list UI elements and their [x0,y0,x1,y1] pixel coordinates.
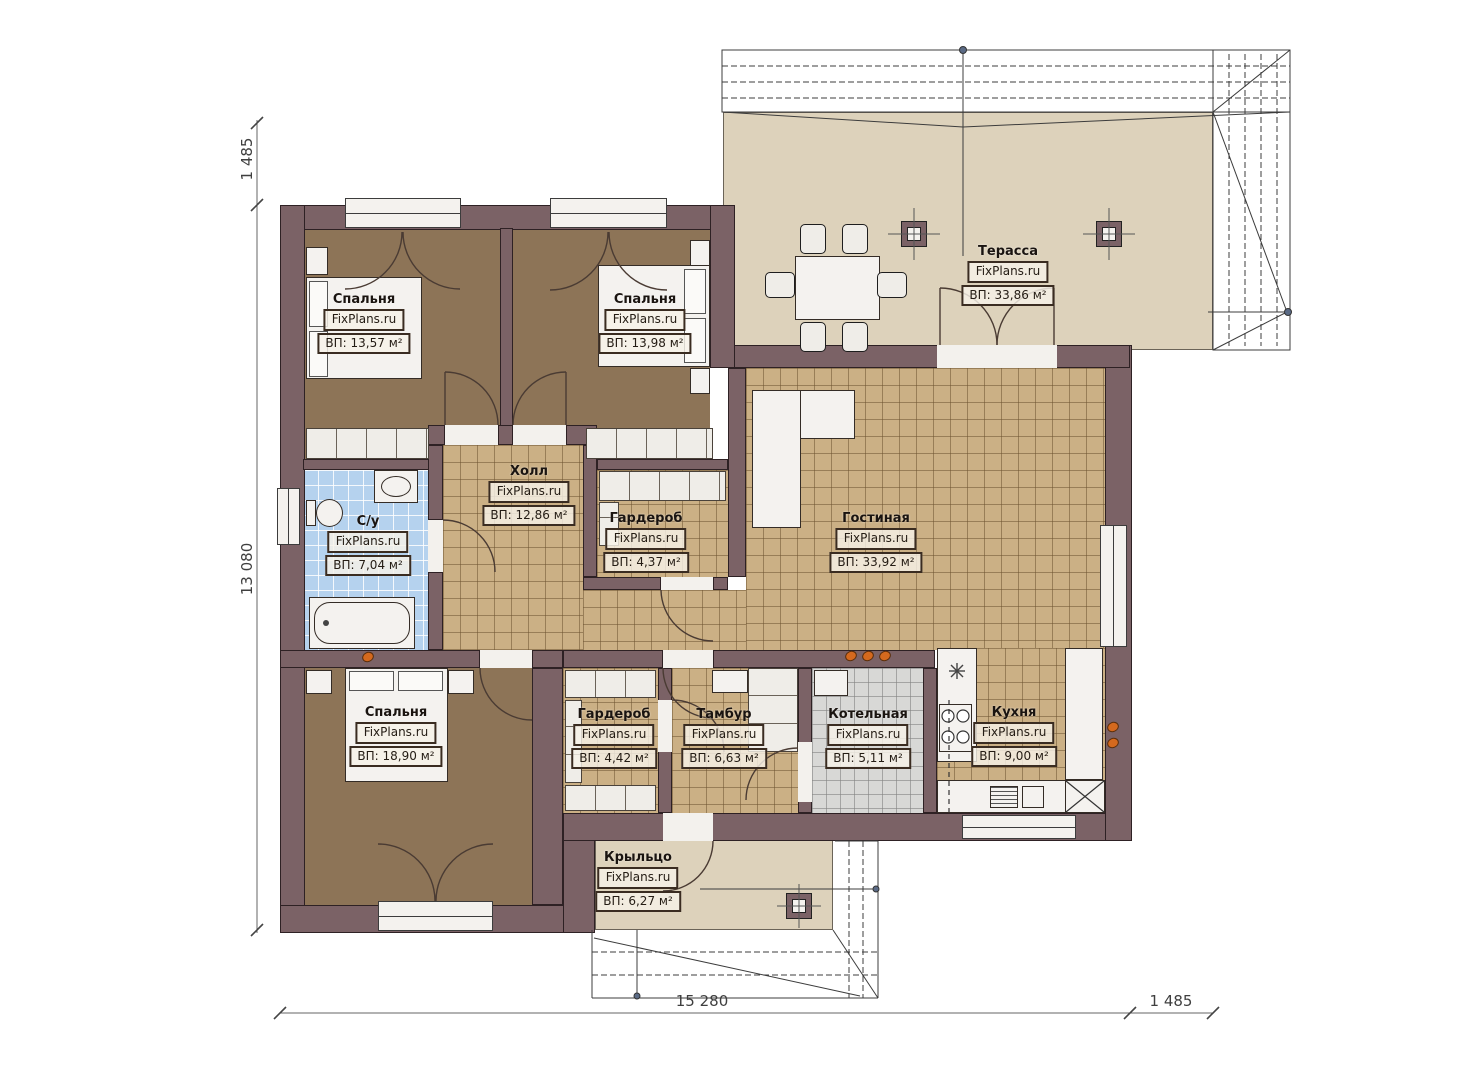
room-name: Гостиная [842,512,910,526]
room-name: Гардероб [577,708,650,722]
kitchen-sink-basin [1022,786,1044,808]
room-label-bedroom-bottom: Спальня FixPlans.ru ВП: 18,90 м² [349,706,442,767]
room-area: ВП: 7,04 м² [325,555,411,576]
window-bedroom-top-left [345,198,461,228]
sofa-vertical [752,390,801,528]
room-label-kitchen: Кухня FixPlans.ru ВП: 9,00 м² [971,706,1057,767]
room-label-living-room: Гостиная FixPlans.ru ВП: 33,92 м² [829,512,922,573]
room-name: Спальня [333,293,395,307]
window-bedroom-bottom [378,901,493,931]
wall-terrace-living [710,345,1130,368]
room-area: ВП: 12,86 м² [482,505,575,526]
room-name: Котельная [828,708,908,722]
room-label-wardrobe-top: Гардероб FixPlans.ru ВП: 4,37 м² [603,512,689,573]
room-label-wardrobe-bottom: Гардероб FixPlans.ru ВП: 4,42 м² [571,708,657,769]
room-label-bedroom-top-right: Спальня FixPlans.ru ВП: 13,98 м² [598,293,691,354]
closet-bedroom-top-right [586,428,713,459]
room-label-vestibule: Тамбур FixPlans.ru ВП: 6,63 м² [681,708,767,769]
room-area: ВП: 6,63 м² [681,748,767,769]
room-label-bedroom-top-left: Спальня FixPlans.ru ВП: 13,57 м² [317,293,410,354]
chair [800,322,826,352]
room-label-terrace: Терасса FixPlans.ru ВП: 33,86 м² [961,245,1054,306]
door-opening-bedroom-top-left [445,425,498,445]
wall-bath-east-b [428,572,443,650]
wall-bath-east-a [428,445,443,520]
door-opening-bedroom-top-right [513,425,566,445]
wall-wardrobe-top-south-a [583,577,661,590]
brand-watermark: FixPlans.ru [328,531,409,552]
wall-wardrobe-top-north [597,459,728,470]
room-label-bathroom: С/у FixPlans.ru ВП: 7,04 м² [325,515,411,576]
wall-vestibule-north [713,650,935,668]
brand-watermark: FixPlans.ru [684,724,765,745]
room-name: Спальня [365,706,427,720]
column-terrace-1 [901,221,927,247]
door-opening-entrance [663,813,713,841]
closet-wardrobe-top [599,471,726,501]
wall-hall-living [728,368,746,577]
wall-bedroom-bottom-north-a [280,650,480,668]
kitchen-counter-right [1065,648,1103,780]
toilet-tank [306,500,316,526]
brand-watermark: FixPlans.ru [974,722,1055,743]
room-name: С/у [357,515,380,529]
dimension-left-top: 1 485 [238,124,256,194]
pillow [398,671,443,691]
wall-left [280,205,305,933]
room-area: ВП: 5,11 м² [825,748,911,769]
room-name: Терасса [978,245,1038,259]
room-name: Крыльцо [604,851,672,865]
wall-bedroom-block-east [710,205,735,368]
brand-watermark: FixPlans.ru [598,867,679,888]
brand-watermark: FixPlans.ru [489,481,570,502]
door-opening-boiler [798,742,812,802]
brand-watermark: FixPlans.ru [605,309,686,330]
room-area: ВП: 4,42 м² [571,748,657,769]
sink-basin [381,476,411,497]
wall-bedroom-bottom-north-b [532,650,563,668]
pillow [349,671,394,691]
wall-bath-north [303,459,429,470]
chair [877,272,907,298]
room-name: Спальня [614,293,676,307]
nightstand [448,670,474,694]
brand-watermark: FixPlans.ru [574,724,655,745]
closet-wardrobe-bottom-top [565,670,656,698]
room-area: ВП: 18,90 м² [349,746,442,767]
wall-wardrobe-top-south-b [713,577,728,590]
room-label-boiler-room: Котельная FixPlans.ru ВП: 5,11 м² [825,708,911,769]
room-area: ВП: 6,27 м² [595,891,681,912]
door-opening-bedroom-bottom [480,650,532,668]
brand-watermark: FixPlans.ru [324,309,405,330]
wall-bedroom-bottom-east [532,668,563,905]
closet-bedroom-top-left [306,428,429,459]
column-terrace-2 [1096,221,1122,247]
window-bathroom [277,488,300,545]
closet-wardrobe-bottom-low [565,785,656,811]
nightstand [306,247,328,275]
brand-watermark: FixPlans.ru [606,528,687,549]
nightstand [690,240,710,266]
dimension-left-side: 13 080 [238,534,256,604]
nightstand [306,670,332,694]
wall-hall-top-b [498,425,513,445]
brand-watermark: FixPlans.ru [356,722,437,743]
dining-table [795,256,880,320]
wall-boiler-kitchen [923,668,937,813]
cabinet-vestibule [712,670,748,693]
door-opening-vestibule [663,650,713,668]
brand-watermark: FixPlans.ru [836,528,917,549]
floor-plan-canvas: Спальня FixPlans.ru ВП: 13,57 м² Спальня… [0,0,1473,1080]
kitchen-x-appliance [1065,780,1105,813]
room-name: Тамбур [696,708,751,722]
bathtub-inner [314,602,410,644]
floor-corridor [583,590,746,650]
water-heater-boiler [814,670,848,696]
stove [939,704,972,752]
door-opening-wardrobe-top [661,577,713,590]
dimension-bottom-right: 1 485 [1136,992,1206,1010]
room-area: ВП: 13,98 м² [598,333,691,354]
chair [842,322,868,352]
room-name: Холл [510,465,548,479]
room-area: ВП: 13,57 м² [317,333,410,354]
room-label-hall: Холл FixPlans.ru ВП: 12,86 м² [482,465,575,526]
room-name: Гардероб [609,512,682,526]
wall-hall-top-a [428,425,445,445]
window-living-room [1100,525,1127,647]
brand-watermark: FixPlans.ru [828,724,909,745]
window-bedroom-top-right [550,198,667,228]
chair [842,224,868,254]
room-area: ВП: 4,37 м² [603,552,689,573]
room-area: ВП: 33,86 м² [961,285,1054,306]
wall-hall-wardrobe [583,445,597,577]
room-name: Кухня [992,706,1037,720]
door-opening-bathroom [428,520,443,572]
chair [765,272,795,298]
nightstand [690,368,710,394]
room-area: ВП: 9,00 м² [971,746,1057,767]
brand-watermark: FixPlans.ru [968,261,1049,282]
room-label-porch: Крыльцо FixPlans.ru ВП: 6,27 м² [595,851,681,912]
window-kitchen [962,815,1076,839]
wall-between-bedrooms [500,228,513,428]
room-area: ВП: 33,92 м² [829,552,922,573]
wall-wardrobe-bottom-north [563,650,663,668]
chair [800,224,826,254]
dimension-bottom-main: 15 280 [667,992,737,1010]
door-opening-wardrobe-bottom [658,700,672,752]
column-porch [786,893,812,919]
kitchen-sink-grate [990,786,1018,808]
door-opening-terrace [937,345,1057,368]
